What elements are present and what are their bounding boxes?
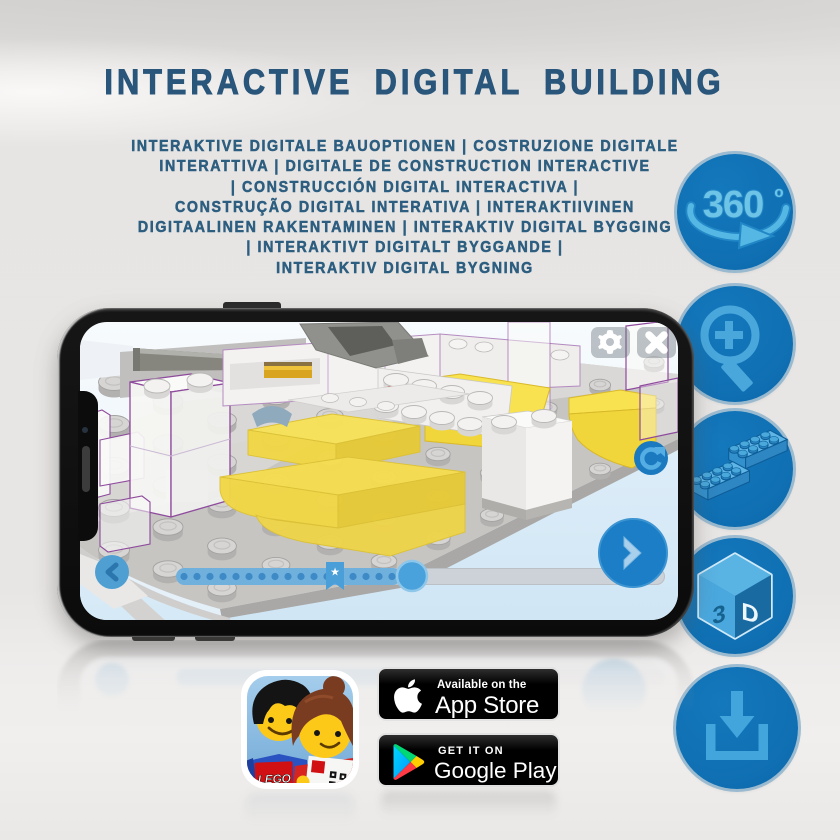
- svg-text:D: D: [741, 598, 758, 629]
- svg-text:3: 3: [712, 600, 725, 630]
- svg-text:o: o: [774, 184, 783, 201]
- svg-text:★: ★: [330, 567, 340, 579]
